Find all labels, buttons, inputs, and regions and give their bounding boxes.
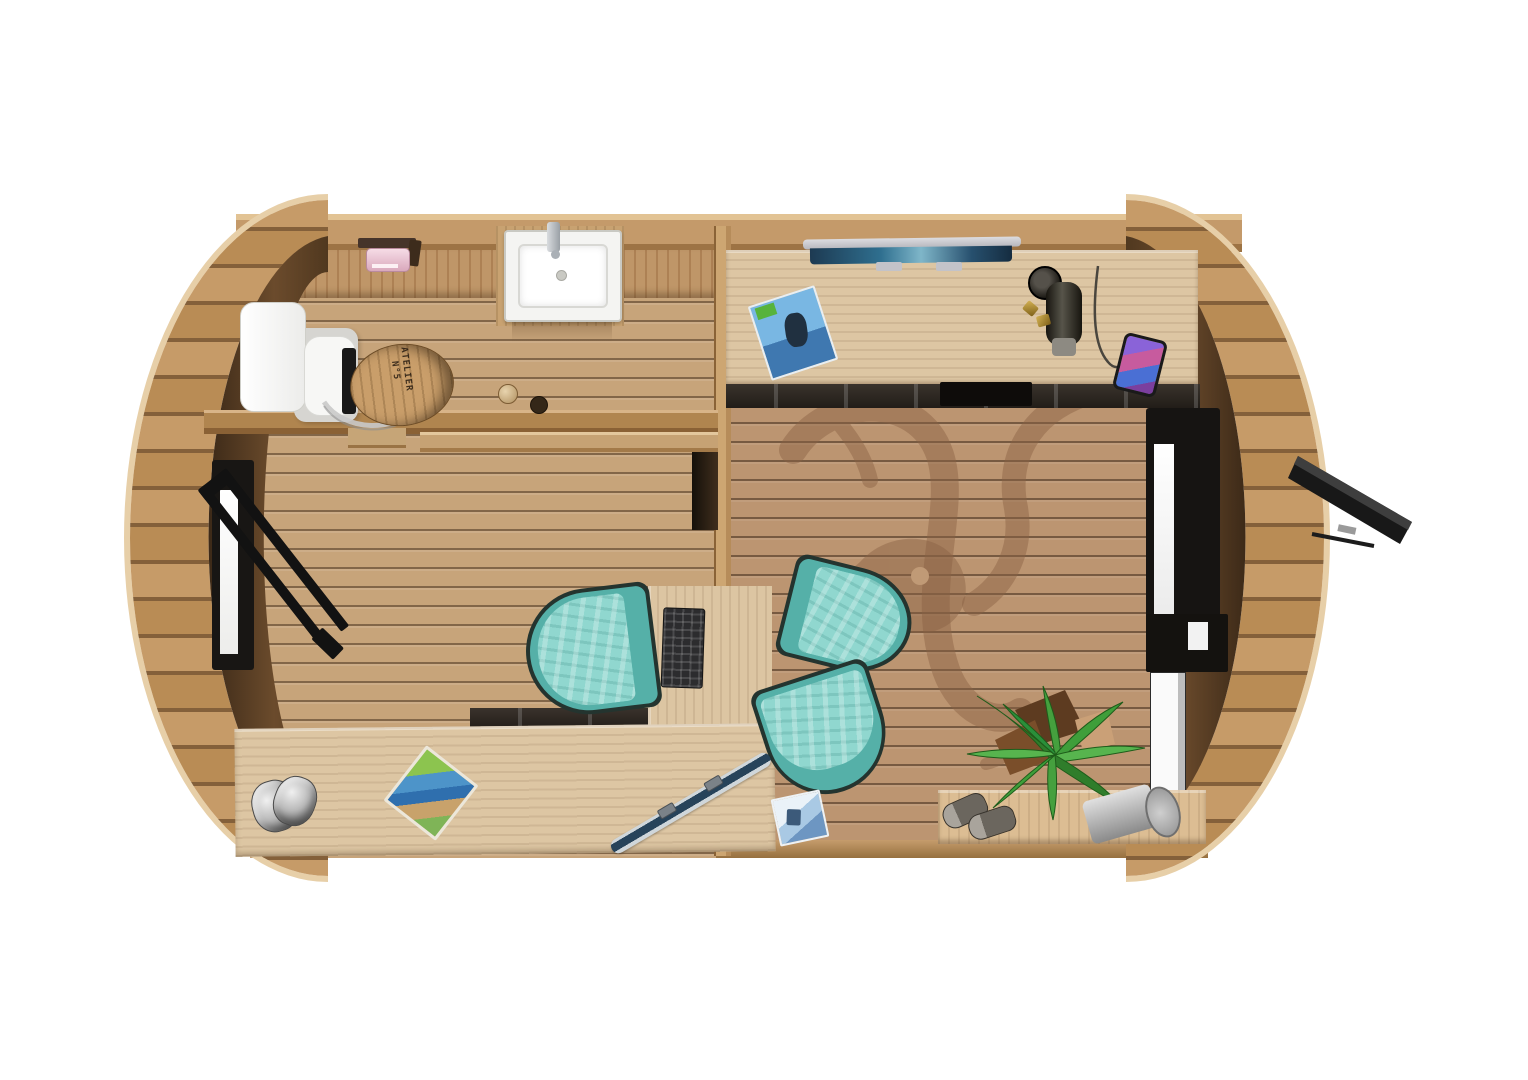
monitor-screen [810, 246, 1012, 265]
floorplan-canvas: ATELIER N°5 [0, 0, 1528, 1080]
toilet-paper-roll [366, 248, 410, 272]
right-glass-door [1150, 672, 1186, 792]
right-window2-frame [1146, 614, 1228, 672]
thermos-bottle [1046, 282, 1082, 346]
monitor-foot-left [876, 262, 902, 271]
toilet-paper-sheet [372, 264, 398, 268]
partition-shelf [204, 410, 718, 434]
right-window2-glass [1188, 622, 1208, 650]
floor-magazine [771, 789, 830, 846]
thermos-cap [1052, 338, 1076, 356]
awning-hatch [1282, 438, 1442, 558]
hatch-panel-edge [1294, 456, 1412, 530]
magazine-title-badge [755, 302, 778, 320]
shelf-board [420, 432, 718, 452]
wood-knob [498, 384, 518, 404]
hatch-stay-rod [1312, 534, 1374, 546]
hatch-hinge [1337, 524, 1356, 535]
magazine-cyclist-figure [783, 311, 810, 348]
toilet-tank [240, 302, 306, 412]
faucet-spout [551, 250, 560, 259]
under-desk-unit [940, 382, 1032, 406]
toilet-paper-bracket [358, 238, 416, 248]
right-window-glass [1154, 444, 1174, 636]
keyboard [661, 607, 706, 688]
sink-drain [556, 270, 567, 281]
floor-magazine-figure [786, 809, 801, 825]
monitor-foot-right [936, 262, 962, 271]
faucet [547, 222, 560, 252]
desk-chair-left-room [519, 581, 663, 722]
dark-knob [530, 396, 548, 414]
